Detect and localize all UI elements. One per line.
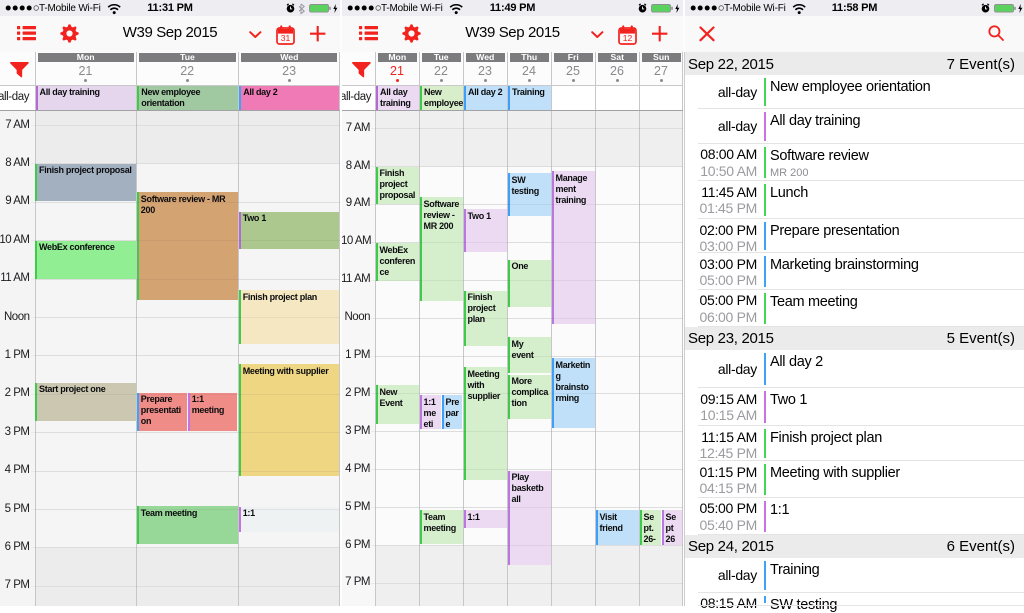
svg-text:12: 12 [622,33,632,43]
svg-text:31: 31 [280,33,290,43]
